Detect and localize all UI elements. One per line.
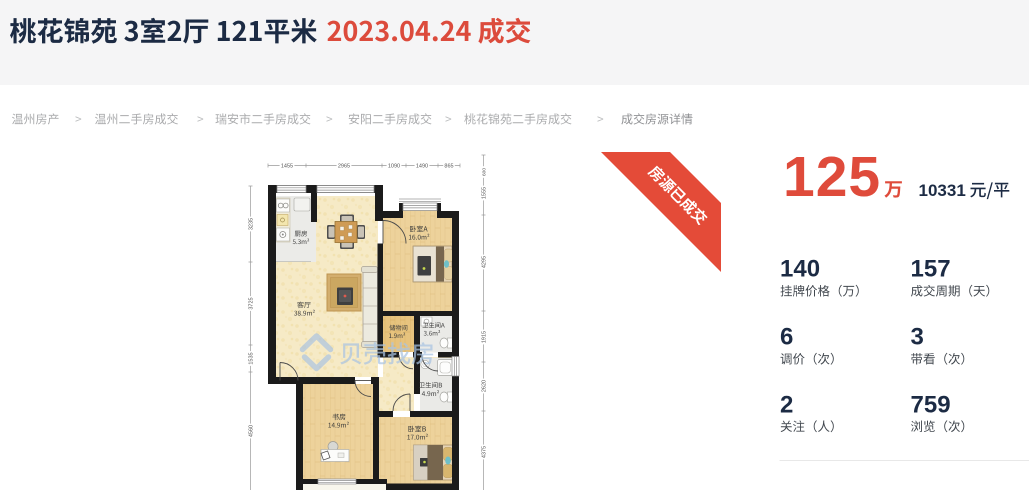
svg-text:1555: 1555 (482, 187, 488, 199)
svg-text:2: 2 (780, 392, 793, 419)
svg-text:2965: 2965 (338, 164, 350, 170)
svg-text:3725: 3725 (249, 297, 255, 309)
svg-text:3: 3 (911, 324, 924, 351)
svg-text:865: 865 (444, 164, 453, 170)
svg-text:157: 157 (911, 256, 951, 283)
svg-text:4295: 4295 (482, 256, 488, 268)
svg-text:6: 6 (780, 324, 793, 351)
svg-text:10331: 10331 (919, 181, 966, 200)
svg-text:4375: 4375 (482, 446, 488, 458)
svg-text:759: 759 (911, 392, 951, 419)
svg-text:1535: 1535 (249, 352, 255, 364)
svg-text:600: 600 (482, 168, 488, 176)
svg-text:1455: 1455 (281, 164, 293, 170)
svg-text:1490: 1490 (416, 164, 428, 170)
svg-text:3235: 3235 (249, 218, 255, 230)
svg-text:1090: 1090 (388, 164, 400, 170)
svg-text:4560: 4560 (249, 425, 255, 437)
svg-text:140: 140 (780, 256, 820, 283)
svg-text:1915: 1915 (482, 331, 488, 343)
svg-text:2620: 2620 (482, 380, 488, 392)
svg-text:125: 125 (783, 145, 881, 209)
